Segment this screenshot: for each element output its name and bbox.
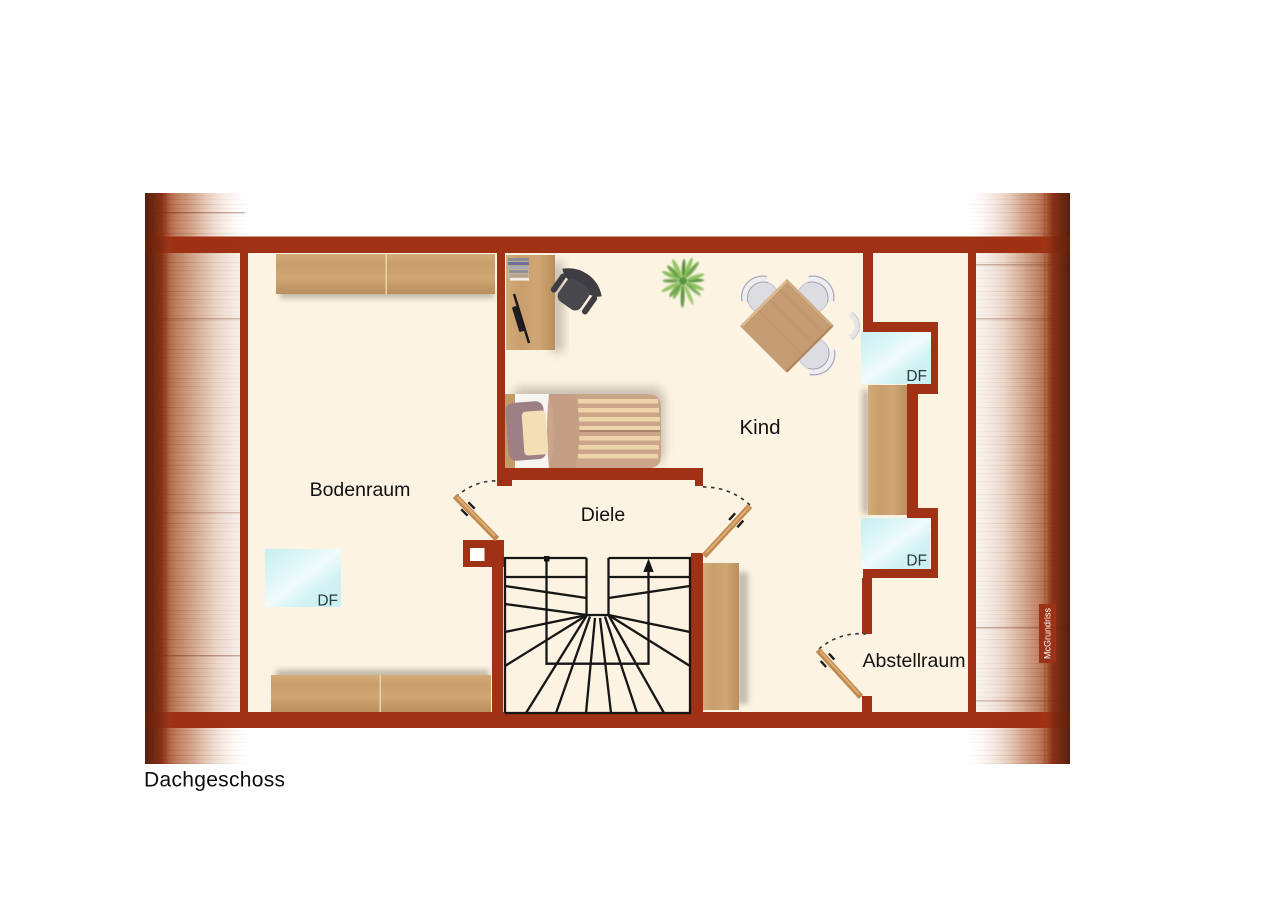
svg-text:McGrundriss: McGrundriss (1043, 608, 1053, 660)
svg-text:Abstellraum: Abstellraum (863, 650, 966, 672)
svg-text:Diele: Diele (581, 504, 625, 526)
svg-text:DF: DF (906, 553, 927, 570)
svg-text:Dachgeschoss: Dachgeschoss (144, 769, 285, 792)
svg-text:Bodenraum: Bodenraum (310, 479, 411, 501)
svg-text:Kind: Kind (739, 416, 780, 439)
svg-text:DF: DF (906, 368, 927, 385)
svg-text:DF: DF (317, 593, 338, 610)
